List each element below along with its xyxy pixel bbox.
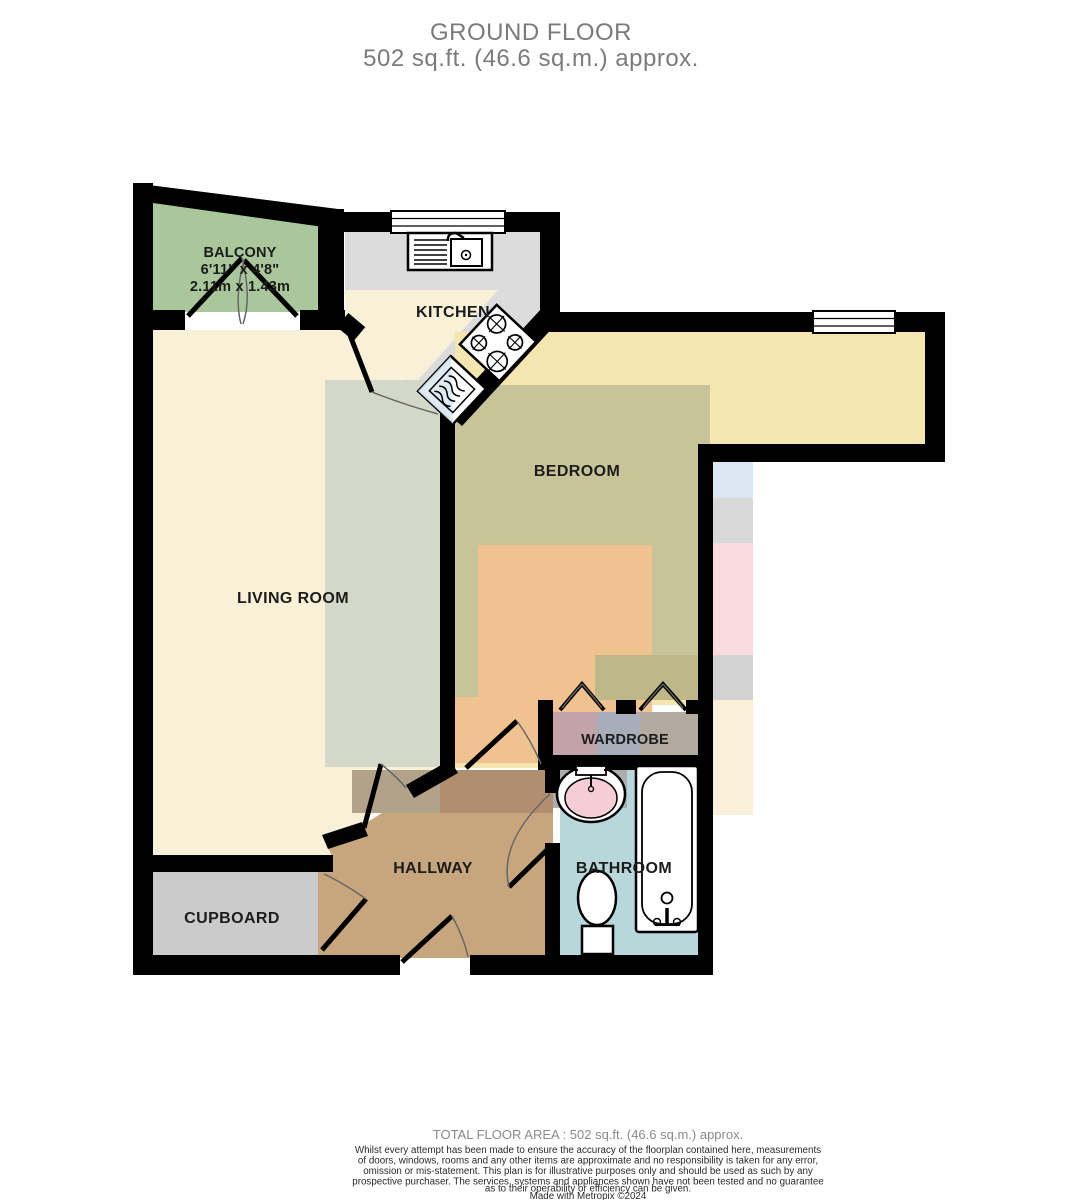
floorplan-page: GROUND FLOOR 502 sq.ft. (46.6 sq.m.) app…: [0, 0, 1077, 1200]
cupboard-label: CUPBOARD: [184, 910, 280, 927]
hallway-label: HALLWAY: [393, 860, 473, 877]
bathroom-label: BATHROOM: [576, 860, 672, 877]
floor-title: GROUND FLOOR: [430, 19, 632, 46]
wall-balcony-bottom-left: [133, 310, 185, 330]
toilet: [578, 871, 616, 954]
overlay-bleed-bands: [713, 462, 753, 815]
bedroom-orange-strip: [455, 697, 552, 763]
wall-bottom-left: [133, 955, 400, 975]
plan-title: GROUND FLOOR 502 sq.ft. (46.6 sq.m.) app…: [363, 19, 699, 72]
disclaimer-line-3: omission or mis-statement. This plan is …: [363, 1166, 813, 1177]
wall-bathroom-left-lower: [545, 843, 560, 975]
living-room-label: LIVING ROOM: [237, 590, 349, 607]
kitchen-label: KITCHEN: [416, 304, 490, 321]
metropix-credit: Made with Metropix ©2024: [530, 1191, 647, 1200]
wall-inner-horizontal: [698, 444, 945, 462]
bedroom-window: [813, 311, 895, 333]
basin-tap-icon: [576, 766, 606, 775]
total-floor-area: TOTAL FLOOR AREA : 502 sq.ft. (46.6 sq.m…: [433, 1127, 743, 1142]
wall-bottom-right: [470, 955, 713, 975]
wall-wardrobe-right-stub: [686, 700, 706, 714]
wall-kitchen-right: [540, 212, 560, 318]
balcony-dim-imperial: 6'11" x 4'8": [201, 262, 280, 278]
bathroom-basin: [557, 766, 625, 822]
living-room-overlay: [325, 380, 443, 767]
bleed-band-blue: [713, 462, 753, 498]
floorplan-drawing: GROUND FLOOR 502 sq.ft. (46.6 sq.m.) app…: [0, 0, 1077, 1200]
bathtub: [636, 766, 698, 932]
bleed-band-cream: [713, 700, 753, 815]
wall-wardrobe-center-stub: [616, 700, 636, 714]
disclaimer-line-2: of doors, windows, rooms and any other i…: [358, 1156, 818, 1167]
footer: TOTAL FLOOR AREA : 502 sq.ft. (46.6 sq.m…: [352, 1127, 824, 1200]
wall-cupboard-top: [133, 855, 333, 872]
kitchen-window: [391, 211, 505, 233]
wall-right-outer: [925, 312, 945, 462]
floor-area-subtitle: 502 sq.ft. (46.6 sq.m.) approx.: [363, 45, 699, 72]
balcony-label: BALCONY: [203, 245, 276, 261]
wall-living-bedroom-divider: [440, 412, 455, 772]
bedroom-label: BEDROOM: [534, 463, 620, 480]
hallway-shadow-right: [440, 770, 553, 813]
bleed-band-pink: [713, 543, 753, 655]
disclaimer-line-1: Whilst every attempt has been made to en…: [355, 1145, 821, 1156]
kitchen-sink: [408, 233, 492, 270]
wardrobe-label: WARDROBE: [581, 732, 669, 748]
balcony-dim-metric: 2.11m x 1.43m: [190, 279, 290, 295]
bleed-band-gray2: [713, 655, 753, 700]
bleed-band-gray: [713, 498, 753, 543]
